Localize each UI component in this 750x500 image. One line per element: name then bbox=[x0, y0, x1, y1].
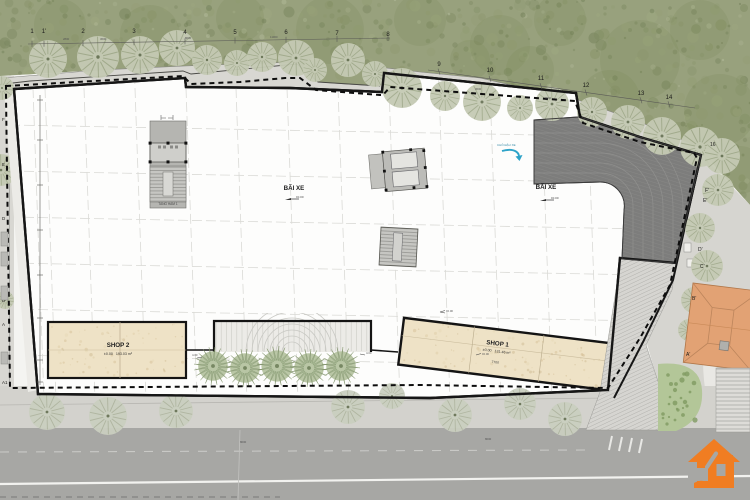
svg-text:3600: 3600 bbox=[100, 37, 107, 41]
svg-text:F': F' bbox=[705, 188, 709, 194]
svg-text:A: A bbox=[2, 322, 5, 327]
svg-text:C': C' bbox=[700, 264, 705, 270]
svg-text:±0.00: ±0.00 bbox=[551, 196, 559, 200]
svg-text:10: 10 bbox=[487, 68, 494, 74]
svg-text:11: 11 bbox=[538, 76, 545, 82]
svg-text:2800: 2800 bbox=[63, 37, 70, 41]
svg-text:A1: A1 bbox=[2, 380, 8, 385]
svg-text:TANG HAM 1: TANG HAM 1 bbox=[158, 202, 177, 206]
svg-text:4.00: 4.00 bbox=[192, 353, 198, 357]
svg-text:4.00: 4.00 bbox=[366, 351, 372, 355]
svg-text:±0.00: ±0.00 bbox=[296, 195, 304, 199]
svg-text:F: F bbox=[2, 117, 5, 122]
svg-text:16: 16 bbox=[710, 142, 716, 148]
svg-text:8000: 8000 bbox=[485, 437, 492, 441]
svg-text:±0.00 193.03 m²: ±0.00 193.03 m² bbox=[104, 352, 133, 356]
svg-text:3600: 3600 bbox=[545, 96, 552, 100]
svg-text:D': D' bbox=[698, 247, 703, 253]
svg-text:8000: 8000 bbox=[240, 440, 247, 444]
svg-text:E: E bbox=[2, 162, 5, 167]
svg-text:CHỖ ĐẬU XE: CHỖ ĐẬU XE bbox=[497, 142, 516, 147]
svg-text:14: 14 bbox=[666, 95, 673, 101]
svg-text:BÃI XE: BÃI XE bbox=[284, 185, 305, 192]
svg-text:±0.00: ±0.00 bbox=[446, 309, 453, 313]
svg-text:SHOP 2: SHOP 2 bbox=[107, 342, 130, 349]
svg-text:E': E' bbox=[703, 198, 707, 204]
svg-text:12: 12 bbox=[583, 83, 590, 89]
svg-text:B': B' bbox=[692, 296, 696, 302]
svg-text:1': 1' bbox=[42, 29, 46, 35]
svg-text:11000: 11000 bbox=[270, 35, 278, 39]
svg-text:BÃI XE: BÃI XE bbox=[536, 184, 557, 191]
svg-text:13: 13 bbox=[638, 91, 645, 97]
svg-text:3600: 3600 bbox=[475, 87, 482, 91]
svg-text:A': A' bbox=[686, 352, 690, 358]
svg-text:±0.00: ±0.00 bbox=[482, 352, 489, 356]
svg-text:8000: 8000 bbox=[185, 36, 192, 40]
